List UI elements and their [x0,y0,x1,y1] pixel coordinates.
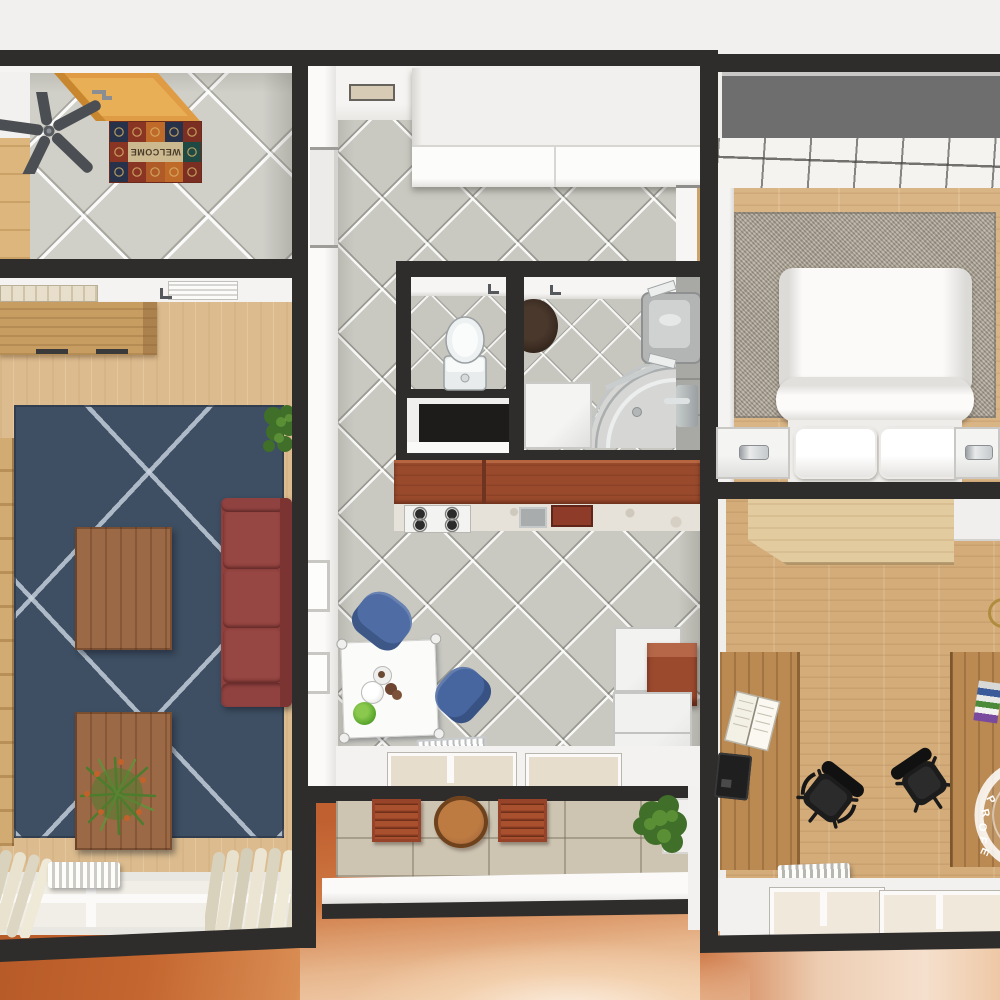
svg-text:F: F [976,835,989,844]
svg-text:O: O [976,823,988,832]
